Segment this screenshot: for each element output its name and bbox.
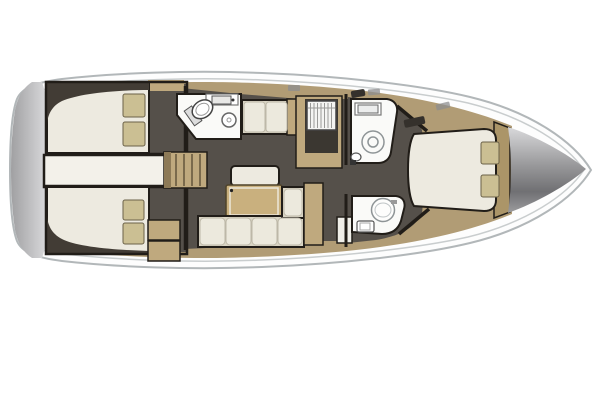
toilet-tank: [350, 160, 356, 165]
forward-head-top: [350, 99, 397, 165]
companionway-stairs: [164, 152, 207, 188]
table-fitting: [230, 189, 233, 192]
pillow: [123, 223, 144, 244]
chaise-seat: [231, 166, 279, 186]
sofa-corner-cushion: [284, 189, 302, 216]
pillow: [481, 175, 499, 197]
sink-icon: [358, 105, 378, 113]
saloon-settee: [242, 99, 301, 135]
faucet-icon: [232, 99, 235, 102]
saloon-table: [226, 185, 282, 218]
sofa-side-cabinet: [304, 183, 323, 245]
sofa-cushion: [226, 218, 251, 245]
faucet-icon: [391, 200, 397, 204]
pillow: [123, 122, 145, 146]
island-double-berth: [408, 129, 496, 211]
sofa-cushion: [200, 218, 225, 245]
sofa-cushion: [252, 218, 277, 245]
sofa-cushion: [278, 218, 302, 245]
settee-cushion: [266, 102, 287, 132]
yacht-floor-plan-image: [0, 0, 600, 400]
deck-fitting-icon: [288, 85, 300, 91]
pillow: [481, 142, 499, 164]
deck-fitting-icon: [368, 88, 380, 95]
forward-head-bottom: [352, 196, 405, 234]
cabinet: [148, 241, 180, 261]
cabinet: [148, 220, 180, 240]
settee-cushion: [244, 102, 265, 132]
stairs-shadow: [164, 152, 171, 188]
engine-compartment: [44, 155, 166, 187]
pillow: [123, 200, 144, 220]
toilet-icon: [351, 153, 361, 161]
washbasin-icon: [222, 113, 236, 127]
yacht-floor-plan: [0, 0, 600, 400]
pillow: [123, 94, 145, 117]
forward-cabin: [408, 122, 510, 218]
sink-icon: [212, 96, 231, 104]
galley: [296, 96, 342, 168]
